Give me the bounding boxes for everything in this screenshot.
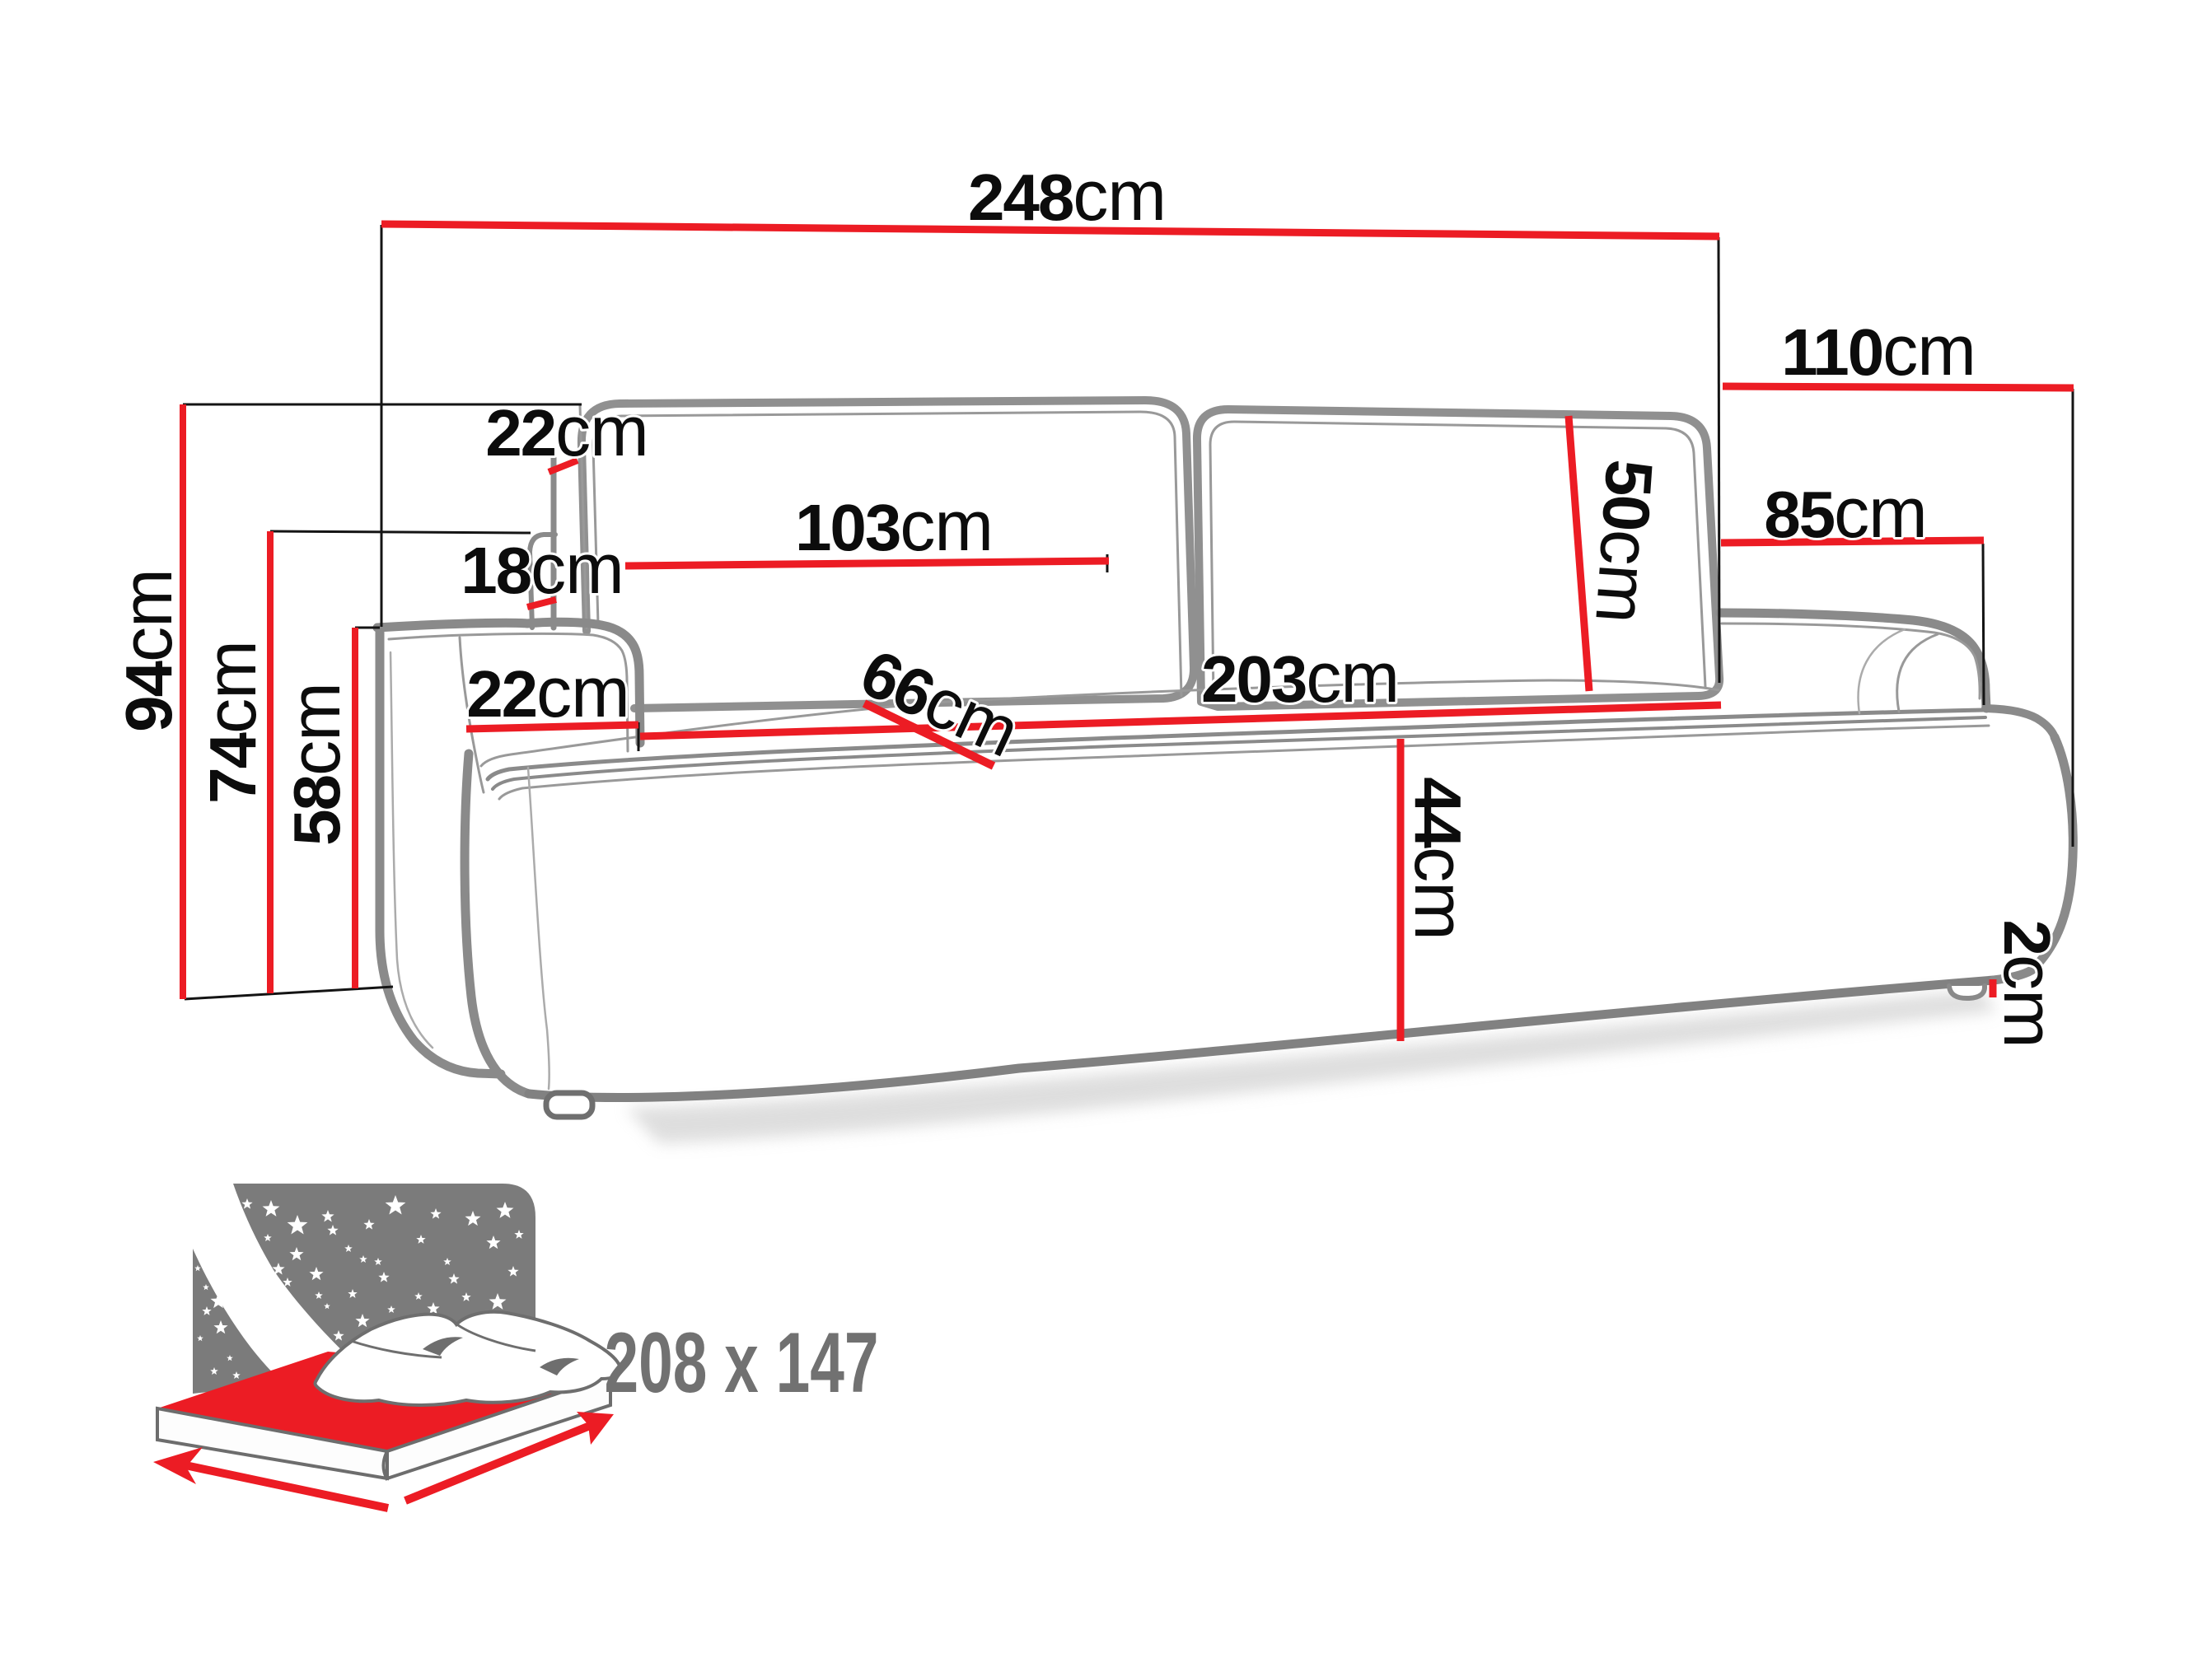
svg-text:110cm: 110cm: [1781, 311, 1976, 390]
svg-text:50cm: 50cm: [1580, 457, 1671, 625]
svg-text:203cm: 203cm: [1201, 638, 1399, 717]
svg-text:103cm: 103cm: [795, 487, 993, 566]
svg-text:2cm: 2cm: [1989, 919, 2068, 1047]
svg-text:18cm: 18cm: [461, 530, 624, 609]
svg-text:248cm: 248cm: [968, 156, 1166, 236]
svg-text:85cm: 85cm: [1764, 474, 1927, 553]
svg-text:22cm: 22cm: [485, 392, 648, 471]
svg-text:22cm: 22cm: [466, 653, 629, 732]
svg-text:94cm: 94cm: [108, 569, 187, 732]
svg-text:208 x 147: 208 x 147: [604, 1315, 878, 1411]
svg-text:58cm: 58cm: [276, 683, 355, 846]
svg-text:74cm: 74cm: [192, 641, 271, 804]
svg-text:44cm: 44cm: [1400, 777, 1479, 940]
